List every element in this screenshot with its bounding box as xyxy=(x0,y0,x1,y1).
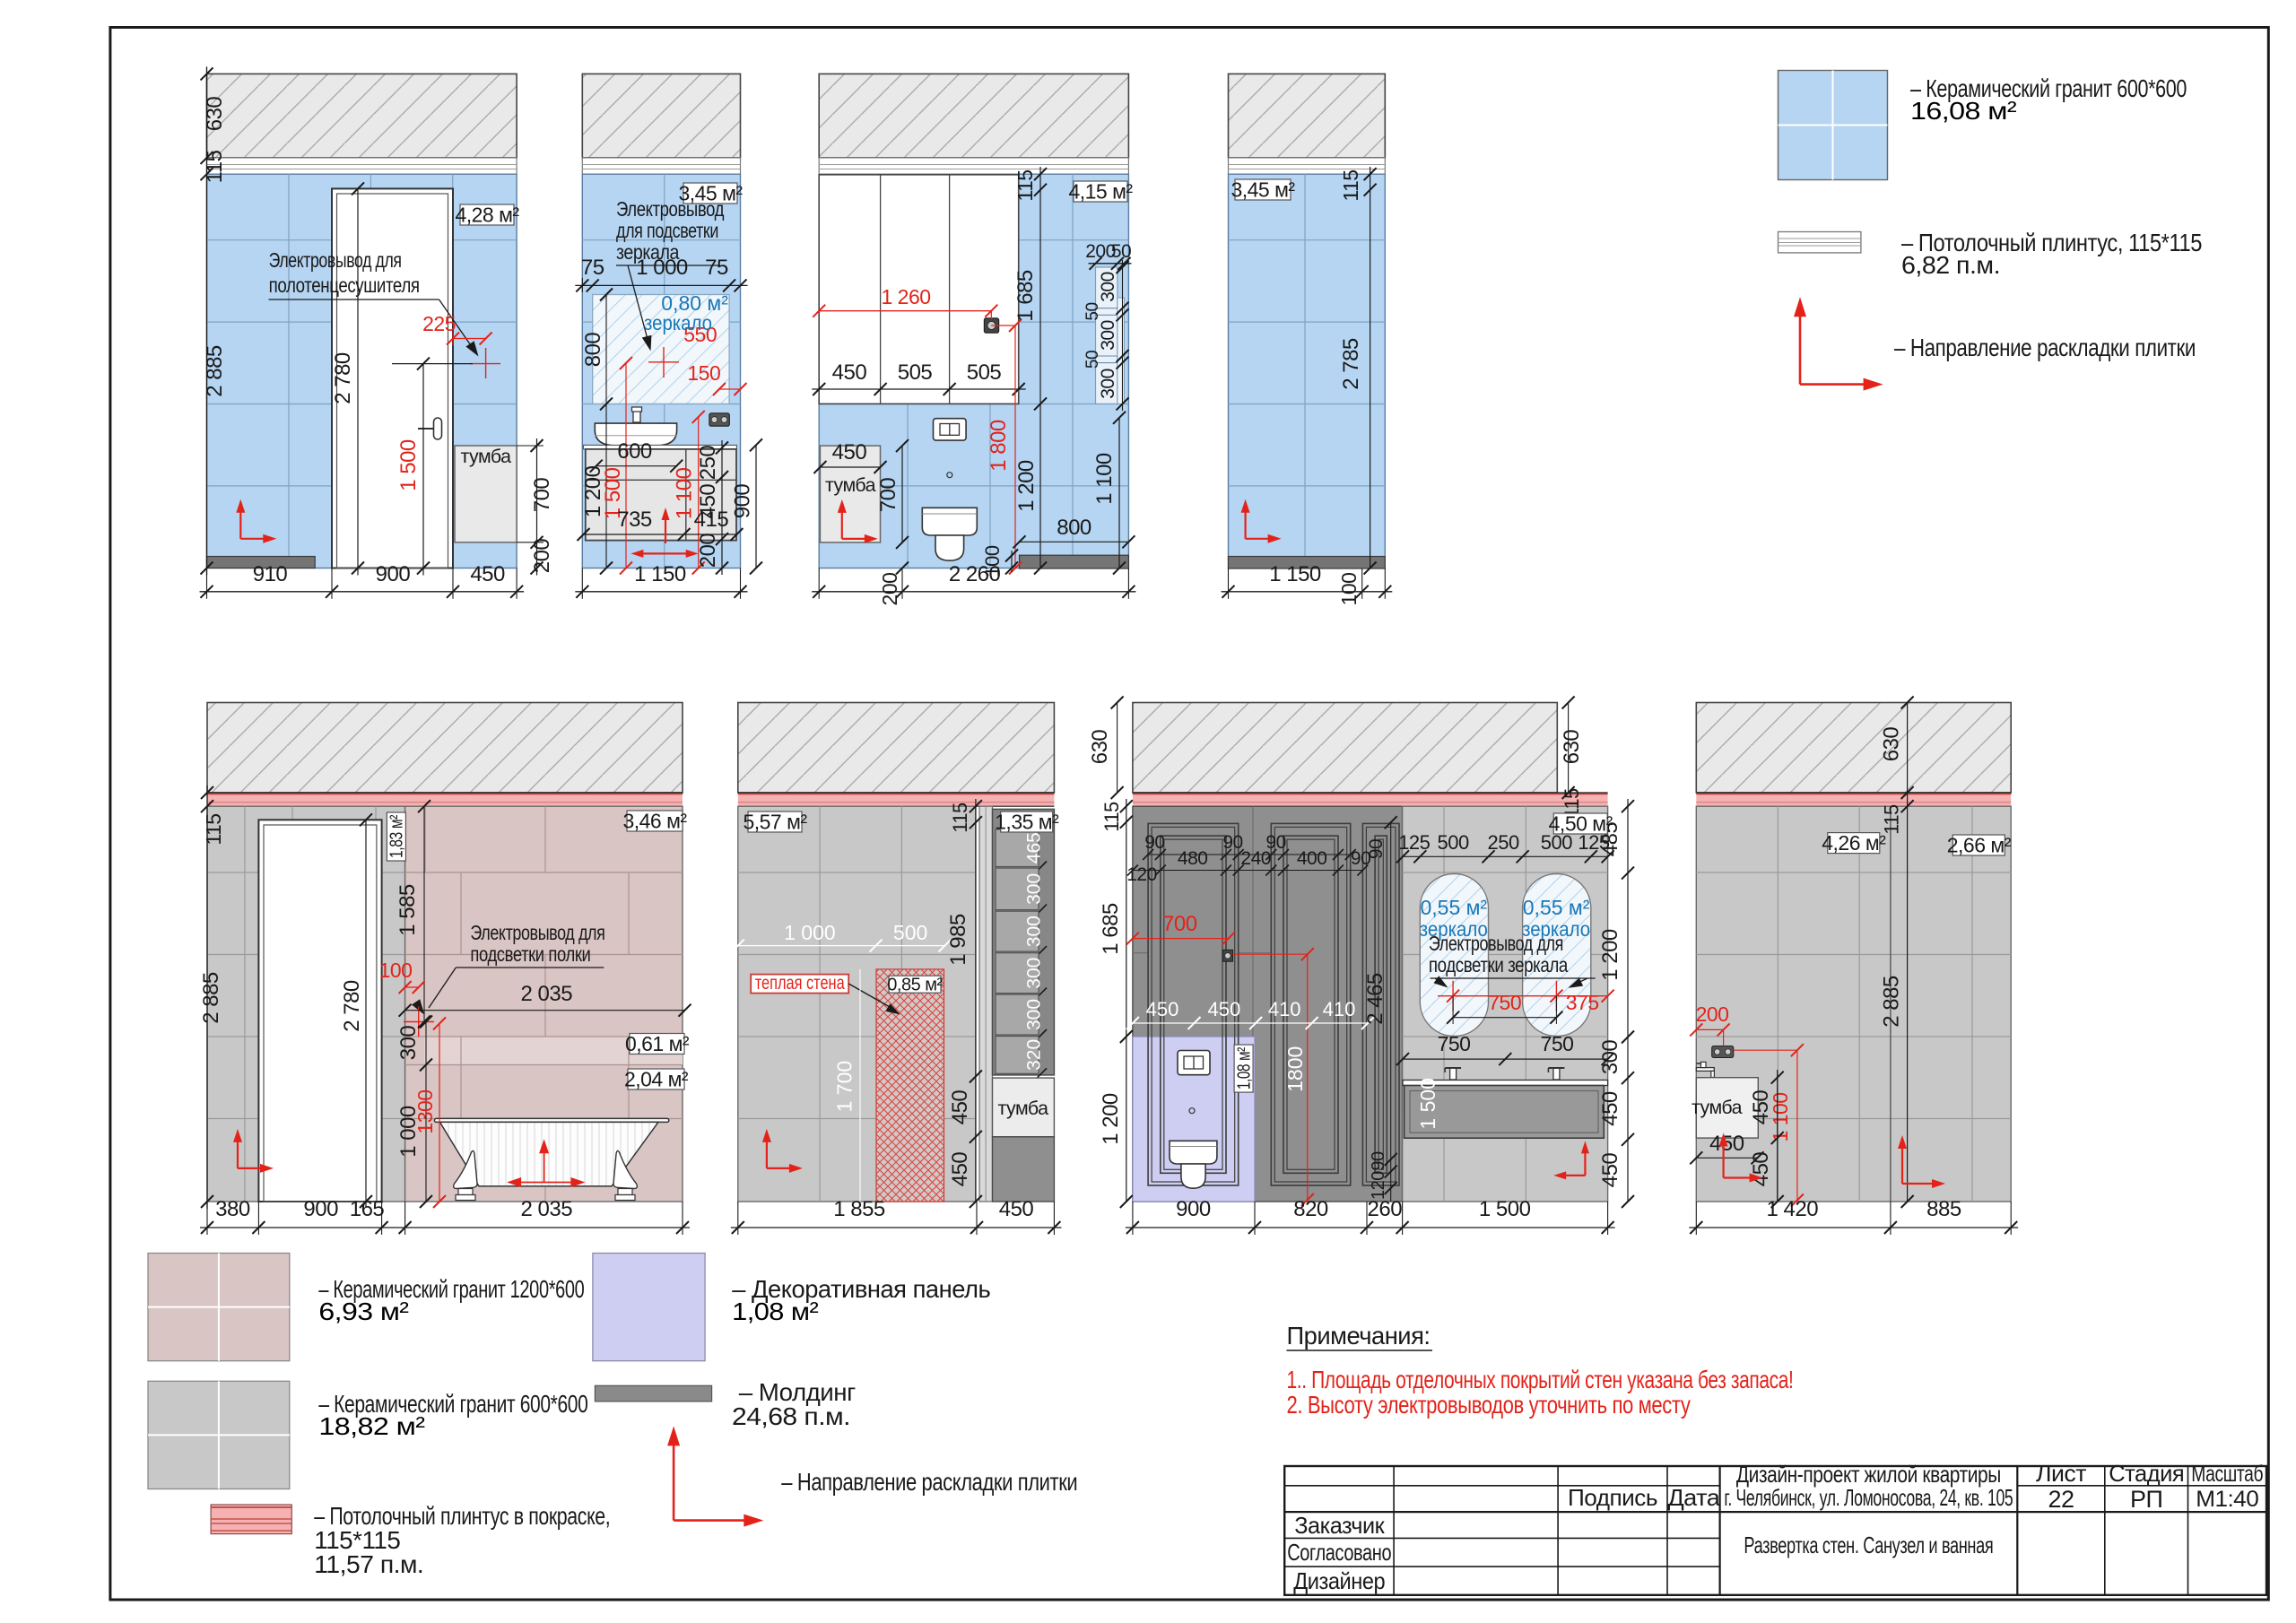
svg-text:630: 630 xyxy=(1560,730,1584,765)
svg-text:0,85 м²: 0,85 м² xyxy=(887,976,943,995)
svg-text:1 800: 1 800 xyxy=(987,420,1011,472)
svg-text:900: 900 xyxy=(1176,1197,1211,1221)
svg-text:2 035: 2 035 xyxy=(521,982,573,1006)
svg-text:4,50 м²: 4,50 м² xyxy=(1549,811,1613,835)
svg-text:375: 375 xyxy=(1566,991,1599,1014)
svg-text:Электровывод для: Электровывод для xyxy=(470,921,604,944)
svg-text:г. Челябинск, ул. Ломоносова,: г. Челябинск, ул. Ломоносова, 24, кв. 10… xyxy=(1724,1484,2013,1511)
svg-text:450: 450 xyxy=(1598,1091,1622,1126)
svg-text:90: 90 xyxy=(1369,1151,1388,1171)
svg-text:450: 450 xyxy=(948,1090,972,1125)
svg-text:1 200: 1 200 xyxy=(1598,929,1622,981)
svg-text:6,82 п.м.: 6,82 п.м. xyxy=(1901,251,2000,279)
svg-text:300: 300 xyxy=(396,1026,421,1061)
svg-text:для подсветки: для подсветки xyxy=(616,219,718,242)
svg-text:1 150: 1 150 xyxy=(634,562,686,586)
svg-text:Согласовано: Согласовано xyxy=(1287,1539,1391,1566)
svg-text:1 500: 1 500 xyxy=(396,439,421,491)
svg-text:1 685: 1 685 xyxy=(1013,270,1038,322)
svg-text:1 000: 1 000 xyxy=(784,921,836,944)
svg-text:260: 260 xyxy=(1368,1197,1403,1221)
svg-text:600: 600 xyxy=(617,439,652,464)
svg-text:тумба: тумба xyxy=(461,447,512,467)
svg-text:11,57 п.м.: 11,57 п.м. xyxy=(314,1550,423,1578)
svg-text:125: 125 xyxy=(1398,831,1430,854)
svg-text:100: 100 xyxy=(379,959,413,982)
svg-text:700: 700 xyxy=(530,478,554,513)
svg-text:2 465: 2 465 xyxy=(1363,973,1387,1025)
svg-text:5,57 м²: 5,57 м² xyxy=(743,810,807,833)
svg-text:1,35 м²: 1,35 м² xyxy=(995,810,1059,833)
svg-text:2 885: 2 885 xyxy=(199,972,223,1024)
svg-text:1 500: 1 500 xyxy=(1479,1197,1531,1221)
svg-text:подсветки полки: подсветки полки xyxy=(470,942,590,966)
svg-text:300: 300 xyxy=(1098,320,1118,351)
svg-text:24,68 п.м.: 24,68 п.м. xyxy=(732,1402,850,1430)
svg-text:450: 450 xyxy=(1598,1153,1622,1188)
svg-text:450: 450 xyxy=(1749,1152,1773,1187)
svg-text:450: 450 xyxy=(999,1197,1034,1221)
svg-text:100: 100 xyxy=(1337,573,1361,606)
svg-text:22: 22 xyxy=(2048,1486,2074,1513)
svg-text:380: 380 xyxy=(215,1197,250,1221)
svg-text:1 150: 1 150 xyxy=(1269,562,1321,586)
svg-text:400: 400 xyxy=(1297,848,1327,869)
svg-text:0,61 м²: 0,61 м² xyxy=(625,1032,690,1055)
svg-text:450: 450 xyxy=(948,1152,972,1187)
svg-text:Дата: Дата xyxy=(1667,1484,1720,1511)
svg-text:1 260: 1 260 xyxy=(881,285,930,308)
svg-text:90: 90 xyxy=(1366,839,1387,859)
svg-text:3,45 м²: 3,45 м² xyxy=(678,181,743,204)
svg-text:115: 115 xyxy=(1880,804,1902,835)
svg-text:теплая стена: теплая стена xyxy=(755,973,845,994)
svg-text:4,15 м²: 4,15 м² xyxy=(1068,179,1133,203)
svg-text:1 500: 1 500 xyxy=(1416,1078,1439,1130)
svg-text:1 700: 1 700 xyxy=(832,1061,856,1113)
svg-text:2 780: 2 780 xyxy=(331,352,355,404)
svg-text:2 260: 2 260 xyxy=(949,562,1001,586)
svg-text:900: 900 xyxy=(303,1197,338,1221)
svg-text:735: 735 xyxy=(617,508,652,532)
svg-text:115: 115 xyxy=(202,813,225,845)
svg-text:750: 750 xyxy=(1541,1032,1574,1055)
svg-text:1 100: 1 100 xyxy=(673,467,697,519)
svg-text:Примечания:: Примечания: xyxy=(1287,1322,1431,1350)
svg-text:820: 820 xyxy=(1293,1197,1328,1221)
svg-text:2 780: 2 780 xyxy=(340,980,364,1032)
svg-text:480: 480 xyxy=(1178,848,1208,869)
svg-text:630: 630 xyxy=(1879,727,1903,762)
svg-text:120: 120 xyxy=(1126,864,1157,885)
svg-text:подсветки зеркала: подсветки зеркала xyxy=(1429,953,1569,976)
svg-text:200: 200 xyxy=(878,573,901,606)
svg-text:900: 900 xyxy=(731,484,755,519)
svg-text:1 420: 1 420 xyxy=(1767,1197,1819,1221)
svg-text:250: 250 xyxy=(1487,831,1518,854)
svg-text:Лист: Лист xyxy=(2036,1460,2087,1487)
svg-text:300: 300 xyxy=(1024,999,1045,1030)
svg-text:150: 150 xyxy=(687,361,720,385)
svg-text:3,45 м²: 3,45 м² xyxy=(1231,178,1295,201)
svg-text:0,55 м²: 0,55 м² xyxy=(1420,896,1487,919)
svg-text:Электровывод для: Электровывод для xyxy=(1429,932,1563,955)
svg-text:90: 90 xyxy=(1222,832,1242,853)
svg-text:910: 910 xyxy=(253,562,288,586)
svg-text:500: 500 xyxy=(1437,831,1468,854)
svg-text:полотенцесушителя: полотенцесушителя xyxy=(269,273,420,297)
svg-text:75: 75 xyxy=(705,256,728,280)
svg-text:450: 450 xyxy=(1146,998,1179,1020)
svg-text:Электровывод для: Электровывод для xyxy=(269,248,402,272)
svg-text:300: 300 xyxy=(1024,916,1045,947)
svg-text:1 585: 1 585 xyxy=(396,884,420,936)
svg-text:500: 500 xyxy=(893,921,927,944)
svg-text:200: 200 xyxy=(696,534,720,568)
svg-text:1,08 м²: 1,08 м² xyxy=(1234,1046,1254,1089)
svg-text:115: 115 xyxy=(1100,802,1123,832)
svg-text:1,08 м²: 1,08 м² xyxy=(732,1298,818,1325)
svg-text:630: 630 xyxy=(1088,730,1112,765)
svg-text:450: 450 xyxy=(696,484,720,519)
svg-text:505: 505 xyxy=(898,360,933,385)
svg-text:200: 200 xyxy=(1696,1002,1729,1026)
svg-text:2 885: 2 885 xyxy=(203,345,227,397)
svg-text:450: 450 xyxy=(1749,1090,1773,1125)
svg-text:тумба: тумба xyxy=(825,475,876,496)
svg-text:50: 50 xyxy=(1083,302,1102,320)
svg-text:4,26 м²: 4,26 м² xyxy=(1822,831,1886,855)
svg-text:Развертка стен. Санузел и ванн: Развертка стен. Санузел и ванная xyxy=(1744,1532,1993,1558)
svg-text:1 100: 1 100 xyxy=(1092,453,1117,505)
svg-text:Стадия: Стадия xyxy=(2109,1460,2184,1487)
svg-text:Подпись: Подпись xyxy=(1568,1484,1657,1511)
svg-text:240: 240 xyxy=(1240,848,1271,869)
svg-text:2,04 м²: 2,04 м² xyxy=(624,1067,689,1090)
svg-text:900: 900 xyxy=(376,562,411,586)
svg-text:115: 115 xyxy=(203,150,227,183)
svg-text:2 885: 2 885 xyxy=(1879,976,1903,1028)
svg-text:Заказчик: Заказчик xyxy=(1294,1512,1385,1539)
svg-text:3,46 м²: 3,46 м² xyxy=(622,809,687,832)
svg-text:450: 450 xyxy=(832,440,867,464)
svg-text:2. Высоту электровыводов уточн: 2. Высоту электровыводов уточнить по мес… xyxy=(1287,1391,1691,1419)
svg-text:165: 165 xyxy=(350,1197,385,1221)
svg-text:450: 450 xyxy=(832,360,867,385)
svg-text:450: 450 xyxy=(1208,998,1241,1020)
svg-text:2 035: 2 035 xyxy=(521,1197,573,1221)
svg-text:450: 450 xyxy=(470,562,505,586)
svg-text:1 685: 1 685 xyxy=(1099,903,1123,955)
svg-text:1 855: 1 855 xyxy=(833,1197,885,1221)
svg-text:1 985: 1 985 xyxy=(946,914,970,966)
svg-text:90: 90 xyxy=(1144,832,1164,853)
svg-text:– Направление раскладки плитк: – Направление раскладки плитки xyxy=(1894,334,2196,361)
svg-text:1,83 м²: 1,83 м² xyxy=(387,814,407,858)
svg-text:120: 120 xyxy=(1369,1171,1388,1200)
svg-text:2,66 м²: 2,66 м² xyxy=(1947,833,2012,856)
svg-text:250: 250 xyxy=(696,446,720,481)
svg-text:300: 300 xyxy=(1024,958,1045,989)
svg-text:800: 800 xyxy=(581,333,605,368)
svg-text:115: 115 xyxy=(949,803,971,833)
svg-text:885: 885 xyxy=(1926,1197,1961,1221)
svg-text:зеркало: зеркало xyxy=(644,311,712,334)
svg-text:300: 300 xyxy=(1098,369,1118,399)
svg-text:800: 800 xyxy=(1057,516,1091,540)
svg-text:РП: РП xyxy=(2130,1486,2162,1513)
svg-text:М1:40: М1:40 xyxy=(2196,1487,2258,1512)
svg-text:50: 50 xyxy=(1111,241,1131,262)
svg-text:Масштаб: Масштаб xyxy=(2191,1462,2263,1487)
svg-text:750: 750 xyxy=(1488,991,1521,1014)
svg-text:4,28 м²: 4,28 м² xyxy=(455,203,519,226)
svg-text:1.. Площадь отделочных покрыти: 1.. Площадь отделочных покрытий стен ука… xyxy=(1287,1366,1794,1393)
svg-text:75: 75 xyxy=(581,256,604,280)
svg-text:1 200: 1 200 xyxy=(1099,1093,1123,1145)
svg-text:700: 700 xyxy=(876,478,900,513)
svg-text:410: 410 xyxy=(1268,998,1301,1020)
svg-text:6,93 м²: 6,93 м² xyxy=(318,1298,408,1325)
svg-text:– Направление раскладки плитк: – Направление раскладки плитки xyxy=(781,1468,1077,1496)
svg-text:тумба: тумба xyxy=(998,1098,1049,1119)
svg-text:225: 225 xyxy=(422,312,456,335)
svg-text:410: 410 xyxy=(1323,998,1356,1020)
svg-text:0,55 м²: 0,55 м² xyxy=(1523,896,1590,919)
svg-text:1300: 1300 xyxy=(413,1089,437,1133)
svg-text:тумба: тумба xyxy=(1692,1098,1743,1118)
svg-text:1 000: 1 000 xyxy=(636,256,688,280)
svg-text:1 200: 1 200 xyxy=(1014,460,1039,512)
svg-text:300: 300 xyxy=(1598,1040,1622,1075)
svg-text:Дизайнер: Дизайнер xyxy=(1293,1567,1385,1594)
svg-text:750: 750 xyxy=(1438,1032,1471,1055)
svg-text:1800: 1800 xyxy=(1283,1046,1307,1092)
svg-text:465: 465 xyxy=(1024,832,1045,864)
svg-text:700: 700 xyxy=(1162,912,1197,936)
svg-text:300: 300 xyxy=(1024,873,1045,905)
svg-text:630: 630 xyxy=(203,97,227,132)
svg-text:320: 320 xyxy=(1024,1039,1045,1071)
svg-text:505: 505 xyxy=(967,360,1002,385)
svg-text:200: 200 xyxy=(530,539,554,574)
svg-text:300: 300 xyxy=(1098,272,1118,302)
svg-text:50: 50 xyxy=(1083,351,1102,369)
svg-text:18,82 м²: 18,82 м² xyxy=(318,1412,424,1440)
svg-text:16,08 м²: 16,08 м² xyxy=(1910,97,2016,125)
svg-text:115: 115 xyxy=(1013,169,1037,201)
svg-text:115: 115 xyxy=(1339,169,1362,201)
svg-text:2 785: 2 785 xyxy=(1339,338,1363,390)
